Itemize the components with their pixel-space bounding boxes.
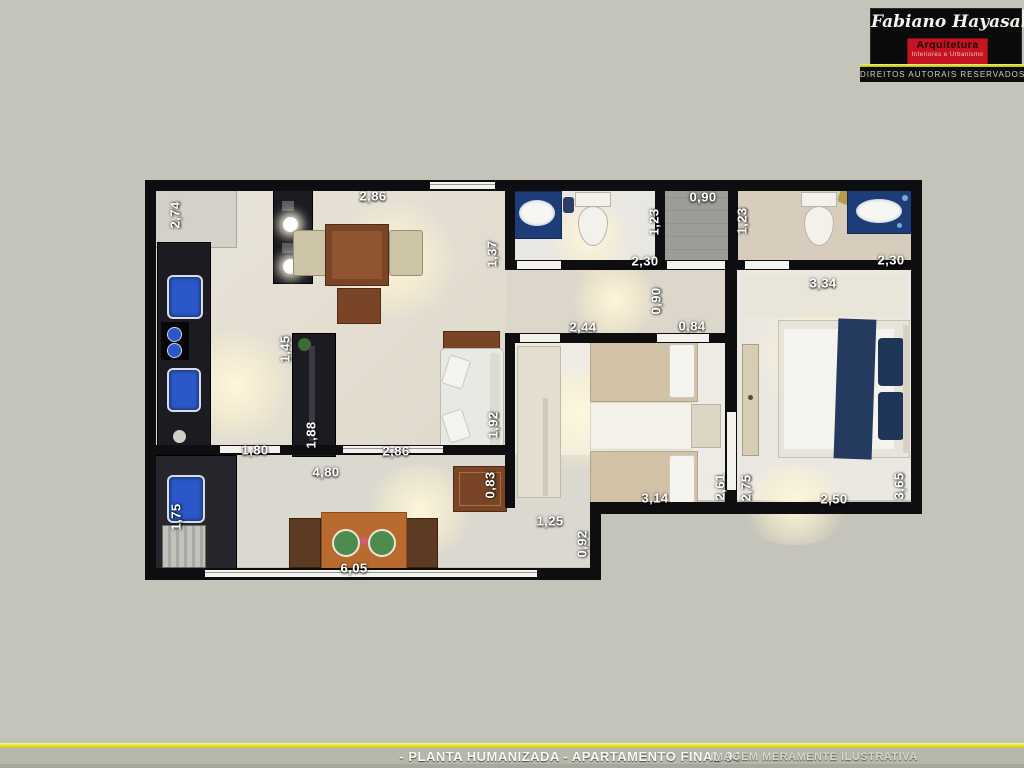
washing-machine bbox=[162, 525, 206, 568]
wall bbox=[145, 180, 156, 580]
door-opening bbox=[667, 261, 725, 269]
footer-bar: - PLANTA HUMANIZADA - APARTAMENTO FINAL … bbox=[0, 738, 1024, 768]
logo-red-badge: Arquitetura Interiores e Urbanismo bbox=[907, 38, 988, 65]
wall bbox=[505, 333, 515, 508]
wall bbox=[600, 502, 922, 514]
logo-field: Arquitetura bbox=[908, 39, 987, 52]
window bbox=[343, 446, 443, 453]
dining-table bbox=[325, 224, 389, 286]
plate bbox=[368, 529, 396, 557]
logo-block: Fabiano Hayasaki Arquitetura Interiores … bbox=[870, 8, 1022, 67]
door-opening bbox=[745, 261, 789, 269]
balcony-chair bbox=[406, 518, 438, 568]
door-opening bbox=[517, 261, 561, 269]
window bbox=[430, 182, 495, 189]
bedroom2-door-leaf bbox=[742, 344, 759, 456]
corridor-floor bbox=[665, 190, 729, 262]
bed-double bbox=[778, 320, 910, 458]
kitchen-sink-2 bbox=[167, 368, 201, 412]
wall bbox=[911, 180, 922, 514]
balcony-glass-railing bbox=[205, 570, 537, 577]
bedroom1-wardrobe bbox=[517, 346, 561, 498]
logo-name: Fabiano Hayasaki bbox=[871, 12, 1021, 32]
bed-single bbox=[590, 340, 698, 402]
door-opening bbox=[220, 446, 280, 453]
wall bbox=[145, 180, 922, 191]
sofa bbox=[440, 348, 504, 455]
tv-panel bbox=[292, 333, 336, 457]
kitchen-plant bbox=[173, 430, 186, 443]
service-sink bbox=[167, 475, 205, 523]
tv-plant bbox=[298, 338, 311, 351]
footer-yellow-line bbox=[0, 743, 1024, 748]
bedroom1-floor-lamp bbox=[543, 398, 548, 496]
bedroom2-wardrobe bbox=[745, 275, 907, 317]
logo-tagline: Interiores e Urbanismo bbox=[908, 52, 987, 59]
bathroom2-vanity bbox=[847, 190, 913, 234]
bathroom1-vanity bbox=[512, 191, 562, 239]
kitchen-cabinet bbox=[155, 188, 237, 248]
logo-rights-text: DIREITOS AUTORAIS RESERVADOS bbox=[860, 67, 1024, 82]
bathroom2-toilet bbox=[801, 192, 835, 246]
dining-chair bbox=[293, 230, 327, 276]
plate bbox=[332, 529, 360, 557]
bedroom1-nightstand bbox=[691, 404, 721, 448]
footer-bottom-strip bbox=[0, 764, 1024, 768]
kitchen-cooktop bbox=[161, 322, 189, 360]
bed-pillow bbox=[878, 338, 904, 386]
footer-note: IMAGEM MERAMENTE ILUSTRATIVA bbox=[710, 751, 917, 763]
bedroom1-rug bbox=[590, 402, 692, 450]
door-opening bbox=[520, 334, 560, 342]
wall bbox=[728, 180, 738, 270]
pendant-light bbox=[282, 201, 294, 211]
balcony-chair bbox=[289, 518, 321, 568]
kitchen-sink bbox=[167, 275, 203, 319]
floor-plan bbox=[145, 180, 922, 580]
sofa-console bbox=[443, 331, 500, 349]
door-opening bbox=[727, 412, 736, 490]
door-opening bbox=[657, 334, 709, 342]
bed-pillow bbox=[878, 392, 904, 440]
page: { "logo": { "name": "Fabiano Hayasaki", … bbox=[0, 0, 1024, 768]
bed-headboard bbox=[903, 325, 910, 453]
wall bbox=[655, 180, 665, 270]
bathroom1-toilet bbox=[575, 192, 609, 246]
hallway-floor bbox=[507, 270, 727, 335]
footer-title: - PLANTA HUMANIZADA - APARTAMENTO FINAL … bbox=[399, 749, 740, 764]
balcony-sideboard bbox=[453, 466, 507, 512]
dining-chair bbox=[337, 288, 381, 324]
balcony-table bbox=[321, 512, 407, 569]
bathroom1-towel bbox=[563, 197, 574, 213]
dining-chair bbox=[389, 230, 423, 276]
bed-runner bbox=[834, 318, 877, 459]
wall bbox=[145, 445, 507, 455]
wall bbox=[505, 180, 515, 270]
